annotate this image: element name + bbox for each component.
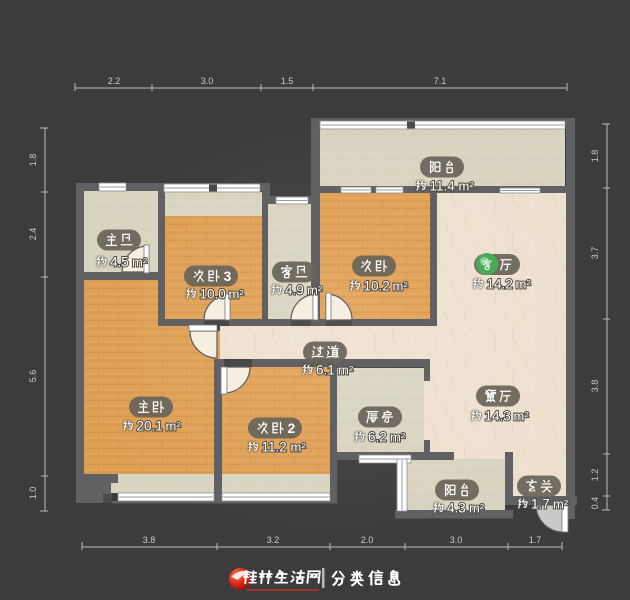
svg-text:2.0: 2.0 [361,535,374,545]
svg-text:m²: m² [229,287,245,302]
svg-text:20.1: 20.1 [137,419,163,434]
svg-text:3.2: 3.2 [267,535,280,545]
svg-text:1.2: 1.2 [590,469,600,482]
svg-text:2.2: 2.2 [108,76,121,86]
svg-text:m²: m² [291,440,307,455]
svg-text:3.8: 3.8 [143,535,156,545]
svg-text:3.8: 3.8 [590,380,600,393]
svg-text:m²: m² [390,430,406,445]
svg-text:10.2: 10.2 [364,279,390,294]
svg-text:m²: m² [516,277,532,292]
svg-text:m²: m² [307,283,323,298]
svg-text:4.5: 4.5 [110,255,129,270]
svg-text:m²: m² [338,363,354,378]
svg-text:1.7: 1.7 [531,497,550,512]
svg-text:14.2: 14.2 [487,277,513,292]
svg-text:1.7: 1.7 [529,535,542,545]
svg-text:m²: m² [553,497,569,512]
svg-text:1.8: 1.8 [28,154,38,167]
svg-text:0.4: 0.4 [590,497,600,510]
svg-text:4.9: 4.9 [285,283,304,298]
svg-text:3.0: 3.0 [450,535,463,545]
svg-text:1.8: 1.8 [590,150,600,163]
svg-text:3: 3 [224,268,232,284]
svg-text:m²: m² [469,501,485,516]
svg-text:7.1: 7.1 [434,76,447,86]
svg-text:m²: m² [166,419,182,434]
svg-text:6.1: 6.1 [316,363,335,378]
svg-text:m²: m² [132,255,148,270]
svg-text:10.0: 10.0 [200,287,226,302]
svg-text:m²: m² [393,279,409,294]
svg-text:4.3: 4.3 [447,501,466,516]
svg-text:5.6: 5.6 [28,370,38,383]
svg-text:11.4: 11.4 [430,179,456,194]
svg-text:1.0: 1.0 [28,487,38,500]
svg-text:11.2: 11.2 [262,440,287,455]
svg-text:m²: m² [514,409,530,424]
svg-text:3.7: 3.7 [590,247,600,260]
svg-text:m²: m² [459,179,475,194]
svg-text:1.5: 1.5 [281,76,294,86]
svg-text:14.3: 14.3 [485,409,511,424]
svg-text:2.4: 2.4 [28,228,38,241]
svg-text:3.0: 3.0 [201,76,214,86]
svg-text:6.2: 6.2 [368,430,387,445]
svg-text:2: 2 [288,420,296,436]
